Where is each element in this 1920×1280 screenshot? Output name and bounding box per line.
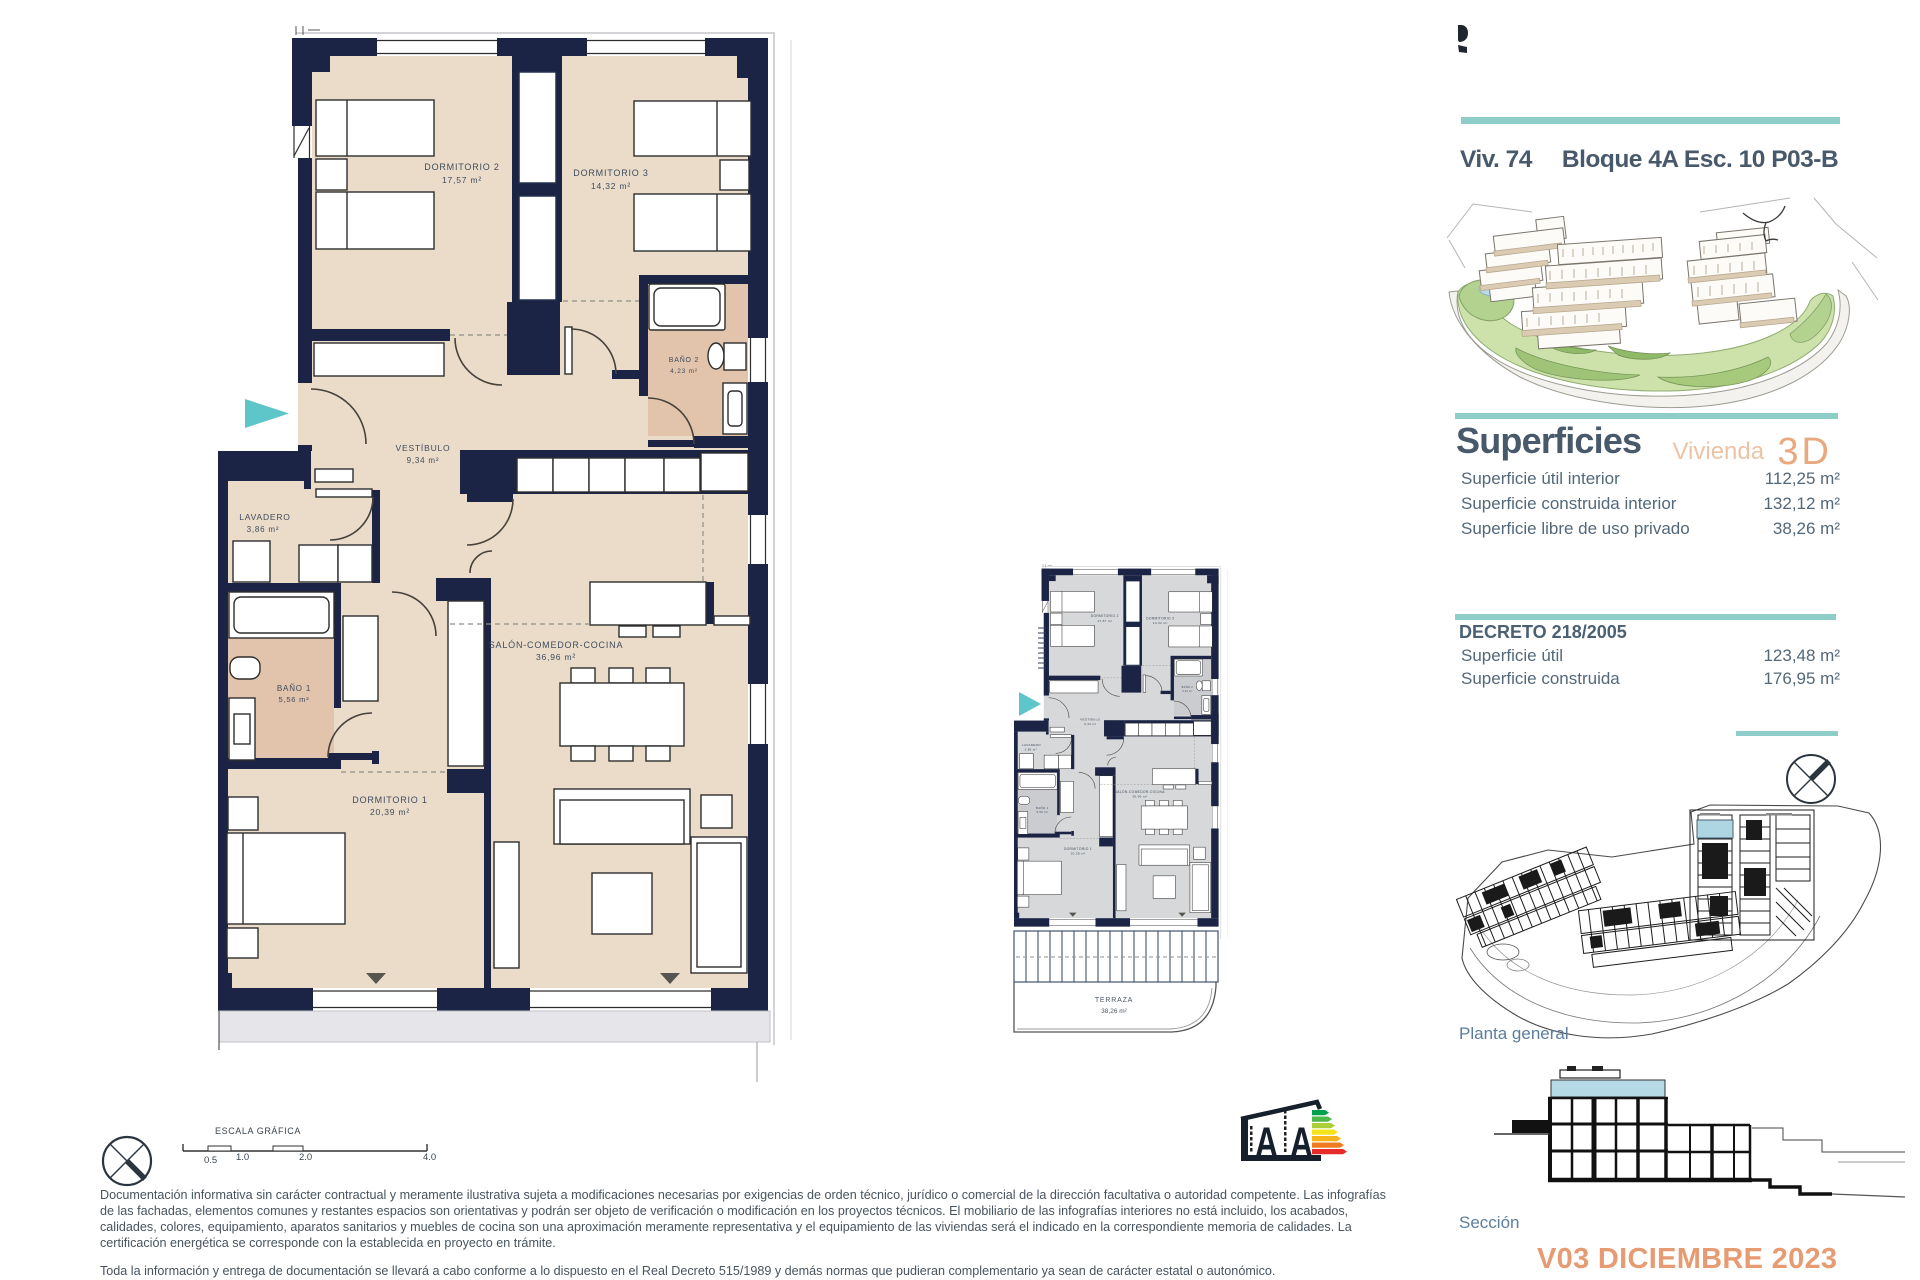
svg-text:TERRAZA: TERRAZA xyxy=(1095,997,1133,1004)
svg-text:A: A xyxy=(1290,1119,1313,1167)
svg-text:A: A xyxy=(1255,1119,1278,1167)
svg-text:38,26 m²: 38,26 m² xyxy=(1101,1008,1127,1015)
